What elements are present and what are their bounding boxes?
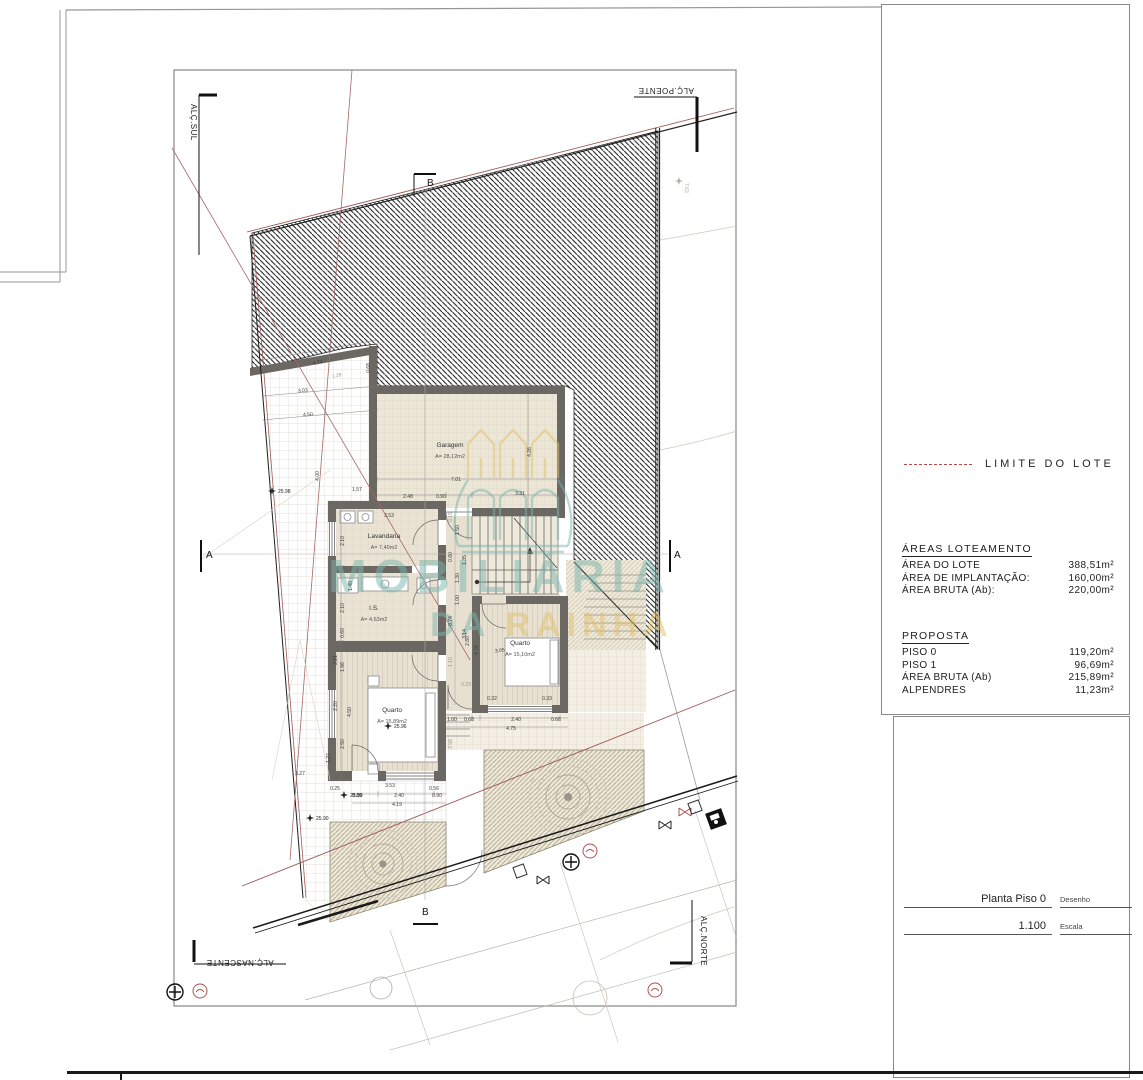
dimension-text: 0.66 (551, 717, 561, 723)
dimension-text: 0.74 (448, 616, 454, 626)
dimension-text: 0.33 (542, 696, 552, 702)
dimension-text: 2.80 (465, 636, 471, 646)
proposta-row: ÁREA BRUTA (Ab)215,89m² (902, 672, 1114, 685)
proposta-row-value: 96,69m² (1075, 660, 1115, 673)
dimension-text: 0.68 (464, 717, 474, 723)
area-row-label: ÁREA DO LOTE (902, 560, 980, 573)
dimension-text: 1.57 (352, 487, 362, 493)
dimension-text: 4.50 (303, 412, 313, 419)
drawing-scale-label: Escala (1060, 922, 1132, 935)
section-label-b-top: B (427, 178, 434, 189)
lot-limit-line-sample (904, 464, 972, 465)
area-row-label: ÁREA DE IMPLANTAÇÃO: (902, 573, 1030, 586)
areas-loteamento-block: ÁREAS LOTEAMENTO ÁREA DO LOTE388,51m²ÁRE… (902, 543, 1114, 598)
room-name: Quarto (510, 640, 530, 647)
room-area: A= 4,63m2 (361, 617, 388, 623)
spot-elevation-text: 25.98 (278, 489, 291, 495)
dimension-text: 4.75 (506, 726, 516, 732)
section-label-a-right: A (674, 550, 681, 561)
dimension-text: 2.48 (403, 494, 413, 500)
dimension-text: 3.53 (385, 783, 395, 789)
dimension-text: 0.32 (487, 696, 497, 702)
elevation-label-norte: ALÇ.NORTE (699, 916, 708, 966)
dimension-text: 2.21 (333, 655, 339, 665)
room-name: I.S. (369, 605, 379, 612)
street-symbols (167, 800, 727, 1000)
dimension-text: 0.68 (366, 363, 372, 373)
room-area: A= 15,10m2 (505, 652, 535, 658)
dimension-text: 2.10 (340, 603, 346, 613)
proposta-title: PROPOSTA (902, 630, 969, 644)
spot-elevation-text: 25.90 (350, 793, 363, 799)
terrace-right (484, 750, 644, 873)
proposta-row: PISO 196,69m² (902, 660, 1114, 673)
dimension-text: 3.03 (298, 388, 308, 395)
dimension-text: 0.25 (330, 786, 340, 792)
dimension-text: 0.90 (432, 793, 442, 799)
proposta-row: PISO 0119,20m² (902, 647, 1114, 660)
elevation-label-nascente: ALÇ.NASCENTE (206, 958, 273, 967)
proposta-row-label: PISO 0 (902, 647, 937, 660)
proposta-row-value: 119,20m² (1069, 647, 1114, 660)
dimension-text: 0.15 (448, 512, 454, 522)
room-area: A= 7,40m2 (371, 545, 398, 551)
room-area: A= 28,12m2 (435, 454, 465, 460)
dimension-text: 4.19 (392, 802, 402, 808)
dimension-text: 0.60 (340, 628, 346, 638)
proposta-row-value: 11,23m² (1075, 685, 1114, 698)
dimension-text: 4.26 (527, 447, 533, 457)
room-name: Lavandaria (368, 533, 401, 540)
area-row: ÁREA DO LOTE388,51m² (902, 560, 1114, 573)
lot-limit-label: LIMITE DO LOTE (985, 458, 1114, 470)
utility-box-icon (705, 808, 727, 830)
dimension-text: 1.50 (455, 525, 461, 535)
dimension-text: 2.40 (511, 717, 521, 723)
dimension-text: 7.01 (451, 477, 461, 483)
elevation-label-poente: ALÇ.POENTE (638, 86, 694, 95)
drawing-name-label: Desenho (1060, 895, 1132, 908)
dimension-text: 2.10 (340, 536, 346, 546)
proposta-block: PROPOSTA PISO 0119,20m²PISO 196,69m²ÁREA… (902, 630, 1114, 697)
elevation-label-sul: ALÇ.SUL (189, 104, 198, 141)
area-row-value: 220,00m² (1069, 585, 1114, 598)
sheet-bottom-tick (120, 1071, 122, 1080)
valve-icon (679, 808, 691, 816)
area-row: ÁREA BRUTA (Ab):220,00m² (902, 585, 1114, 598)
lot-limit-legend: LIMITE DO LOTE (904, 458, 1114, 470)
dimension-text: 3.53 (384, 513, 394, 519)
dimension-text: 4.50 (347, 707, 353, 717)
section-label-a-left: A (206, 550, 213, 561)
section-label-b-bottom: B (422, 907, 429, 918)
dimension-text: 0.23 (461, 682, 471, 688)
watermark-line2b: RAINHA (506, 606, 674, 644)
dimension-text: 1.40 (348, 581, 354, 591)
title-block: Planta Piso 0 Desenho 1.100 Escala (893, 716, 1130, 1078)
dimension-text: 1.00 (447, 717, 457, 723)
dimension-text: 2.50 (340, 739, 346, 749)
proposta-row-label: PISO 1 (902, 660, 937, 673)
dimension-text: 3.31 (515, 491, 525, 497)
legend-panel: LIMITE DO LOTE ÁREAS LOTEAMENTO ÁREA DO … (881, 4, 1130, 715)
sheet-bottom-rule (67, 1071, 1143, 1074)
dimension-text: 1.30 (455, 573, 461, 583)
area-row-value: 388,51m² (1069, 560, 1114, 573)
drawing-scale: 1.100 (904, 920, 1052, 935)
area-row-value: 160,00m² (1069, 573, 1114, 586)
spot-elevation-text: 25.96 (394, 724, 407, 730)
room-name: Garagem (436, 442, 463, 449)
spot-elevation-text: 7.63 (683, 183, 689, 193)
dimension-text: 4.00 (315, 471, 321, 481)
architectural-sheet: B B A A ALÇ.SUL ALÇ.POENTE ALÇ.NASCENTE … (0, 0, 1143, 1080)
dimension-text: 3.27 (295, 771, 305, 777)
spot-elevation-text: 25.90 (316, 816, 329, 822)
dimension-text: 0.90 (436, 494, 446, 500)
dimension-text: 1.35 (462, 555, 468, 565)
spot-elevation-star (675, 177, 683, 185)
dimension-text: 1.10 (448, 657, 454, 667)
proposta-row-label: ALPENDRES (902, 685, 966, 698)
dimension-text: 1.96 (340, 662, 346, 672)
dimension-text: 1.00 (455, 595, 461, 605)
room-name: Quarto (382, 707, 402, 714)
proposta-row-value: 215,89m² (1069, 672, 1114, 685)
dimension-text: 0.56 (429, 786, 439, 792)
drawing-name: Planta Piso 0 (904, 893, 1052, 908)
areas-loteamento-title: ÁREAS LOTEAMENTO (902, 543, 1032, 557)
dimension-text: 3.58 (448, 739, 454, 749)
proposta-row-label: ÁREA BRUTA (Ab) (902, 672, 992, 685)
area-row-label: ÁREA BRUTA (Ab): (902, 585, 995, 598)
watermark-line1: MOBILIÁRIA (328, 550, 671, 602)
dimension-text: 2.20 (333, 701, 339, 711)
dimension-text: 0.80 (448, 552, 454, 562)
area-row: ÁREA DE IMPLANTAÇÃO:160,00m² (902, 573, 1114, 586)
dimension-text: 1.27 (326, 753, 332, 763)
dimension-text: 4.79 (474, 645, 480, 655)
dimension-text: 2.40 (394, 793, 404, 799)
proposta-row: ALPENDRES11,23m² (902, 685, 1114, 698)
